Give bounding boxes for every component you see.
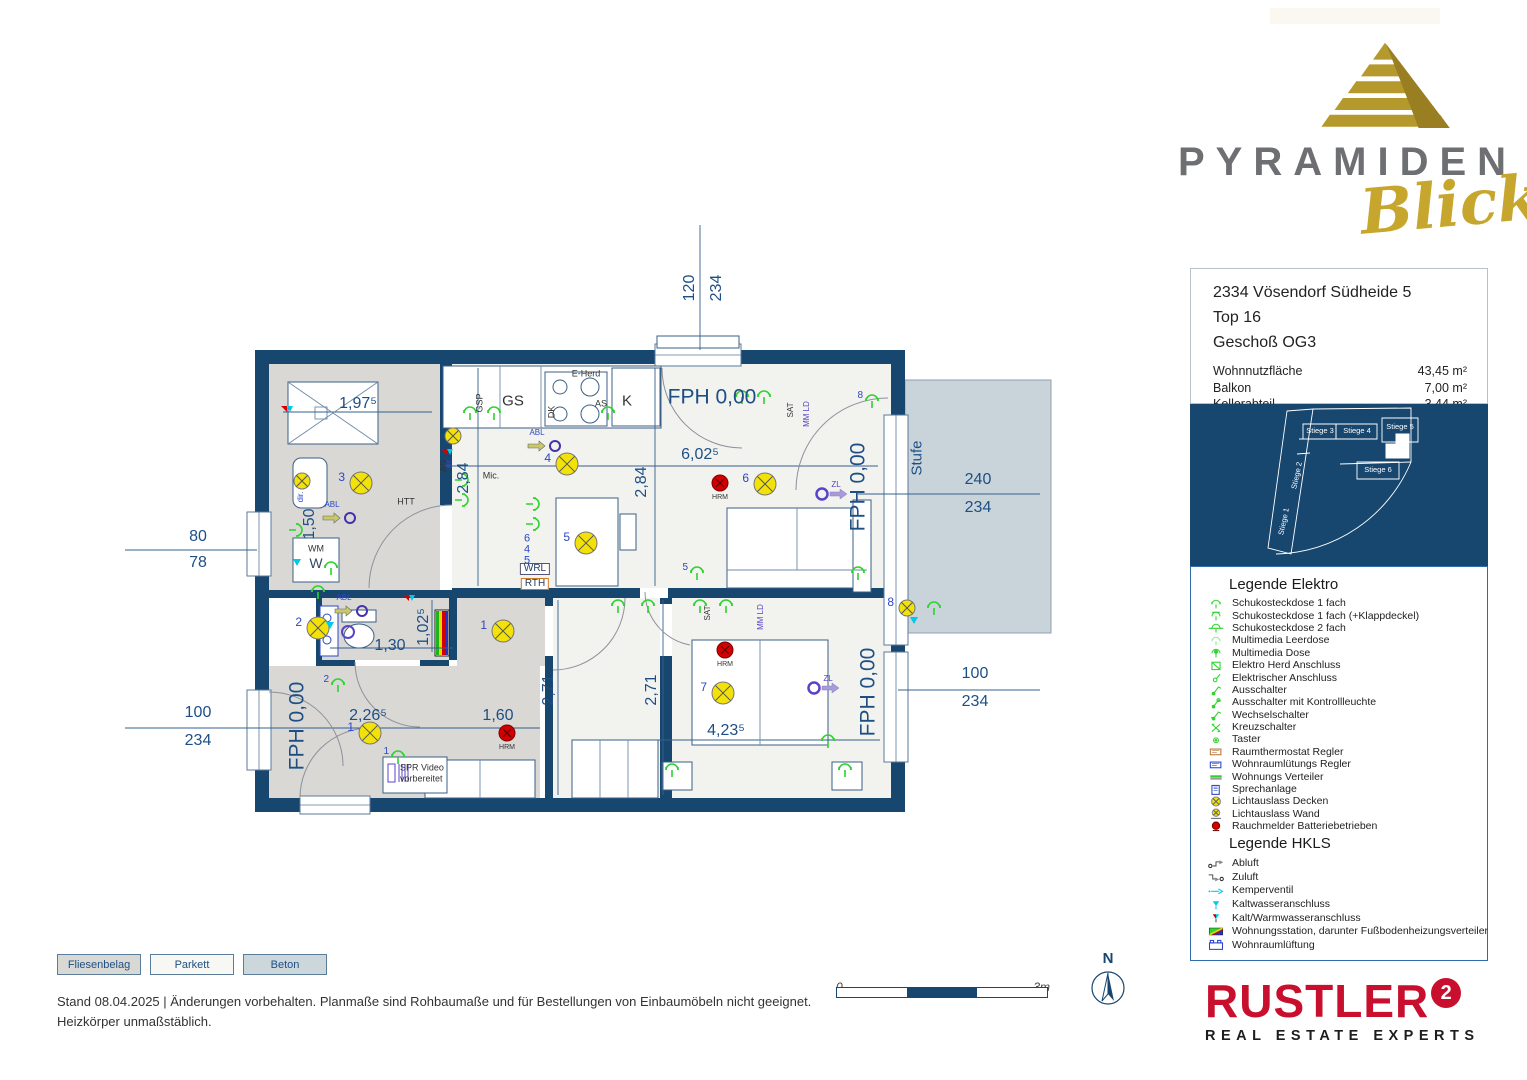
legend-item-label: Schukosteckdose 1 fach (+Klappdeckel) xyxy=(1232,610,1419,622)
wall xyxy=(545,598,553,606)
legend-item: Elektrischer Anschluss xyxy=(1203,671,1483,683)
footer-line-2: Heizkörper unmaßstäblich. xyxy=(57,1012,811,1032)
rustler-tagline: REAL ESTATE EXPERTS xyxy=(1205,1028,1480,1044)
svg-text:8: 8 xyxy=(857,390,863,401)
unit-location-marker xyxy=(1386,434,1409,458)
legend-hkls-list: AbluftZuluftKemperventilKaltwasseranschl… xyxy=(1203,856,1483,951)
legend-item-label: Kaltwasseranschluss xyxy=(1232,898,1330,910)
wstation-icon xyxy=(1203,925,1229,938)
legend-item: Zuluft xyxy=(1203,870,1483,884)
wall xyxy=(452,588,640,598)
legend-hkls-title: Legende HKLS xyxy=(1229,835,1483,852)
sitemap-stiege-label: Stiege 5 xyxy=(1386,422,1414,431)
svg-text:3: 3 xyxy=(338,470,345,484)
svg-text:ABL: ABL xyxy=(529,428,545,437)
material-swatch-beton[interactable]: Beton xyxy=(243,954,327,975)
taster-icon xyxy=(1203,733,1229,746)
legend-item: Ausschalter xyxy=(1203,684,1483,696)
svg-text:6: 6 xyxy=(742,471,749,485)
svg-text:5: 5 xyxy=(682,562,688,573)
room-fixture xyxy=(832,762,862,790)
wall-light-symbol xyxy=(445,428,461,444)
site-plan-svg: Stiege 1Stiege 2Stiege 3Stiege 4Stiege 5… xyxy=(1190,404,1488,566)
toilet xyxy=(344,624,374,648)
legend-item-label: Multimedia Leerdose xyxy=(1232,634,1329,646)
area-row: Balkon7,00 m² xyxy=(1213,380,1471,396)
north-arrow: N xyxy=(1086,950,1130,1013)
sitemap-stiege-label: Stiege 3 xyxy=(1306,426,1334,435)
floor-material-key: FliesenbelagParkettBeton xyxy=(57,954,327,975)
svg-text:ZL: ZL xyxy=(831,480,841,489)
legend-item: Ausschalter mit Kontrollleuchte xyxy=(1203,696,1483,708)
wall-light-symbol xyxy=(294,473,310,489)
legend-item-label: Wohnungs Verteiler xyxy=(1232,771,1323,783)
kemper-icon xyxy=(1203,884,1229,897)
legend-item: Wohnraumlüftung xyxy=(1203,938,1483,952)
sprech-icon xyxy=(1203,783,1229,796)
verteiler-icon xyxy=(1203,770,1229,783)
svg-text:1: 1 xyxy=(347,720,354,734)
wall xyxy=(370,798,905,812)
sitemap-stiege-label: Stiege 6 xyxy=(1364,465,1392,474)
brand-script-name: Blick xyxy=(1357,160,1527,248)
unit-number: Top 16 xyxy=(1213,306,1471,331)
room-floor xyxy=(322,598,449,660)
wall xyxy=(449,598,457,660)
wrr-icon xyxy=(1203,758,1229,771)
wall xyxy=(322,660,355,666)
rustler-logo-mark: 2 xyxy=(1431,978,1461,1008)
area-row: Wohnnutzfläche43,45 m² xyxy=(1213,363,1471,379)
legend-item-label: Kreuzschalter xyxy=(1232,721,1296,733)
legend-item: Multimedia Leerdose xyxy=(1203,634,1483,646)
legend-item: Lichtauslass Wand xyxy=(1203,808,1483,820)
zuluft-icon xyxy=(1203,870,1229,883)
legend-item: Wohnungsstation, darunter Fußbodenheizun… xyxy=(1203,924,1483,938)
compass-icon xyxy=(1088,968,1128,1008)
svg-text:ZL: ZL xyxy=(823,674,833,683)
legend-item-label: Taster xyxy=(1232,733,1261,745)
wall xyxy=(269,590,452,598)
rustler-name: RUSTLER xyxy=(1205,975,1429,1027)
area-label: Wohnnutzfläche xyxy=(1213,363,1302,379)
sitemap-stiege-label: Stiege 4 xyxy=(1343,426,1371,435)
legend-elektro-title: Legende Elektro xyxy=(1229,576,1483,593)
room-fixture xyxy=(853,500,871,592)
legend-item: Raumthermostat Regler xyxy=(1203,746,1483,758)
mm-leer-icon xyxy=(1203,634,1229,647)
legend-panel: Legende Elektro Schukosteckdose 1 fachSc… xyxy=(1190,566,1488,961)
balcony-slab xyxy=(905,380,1051,633)
licht-decke-icon xyxy=(1203,795,1229,808)
herd-icon xyxy=(1203,659,1229,672)
floor-plan-sheet: 112345678HRMHRMHRM2158ABLABLABLZLZL 1,97… xyxy=(0,0,1527,1080)
legend-item: Kaltwasseranschluss xyxy=(1203,897,1483,911)
mm-dose-icon xyxy=(1203,646,1229,659)
logo-top-strip xyxy=(1270,8,1440,24)
legend-item-label: Ausschalter xyxy=(1232,684,1287,696)
legend-item: Schukosteckdose 1 fach (+Klappdeckel) xyxy=(1203,609,1483,621)
room-fixture xyxy=(572,740,658,798)
sitemap-stiege-label: Stiege 1 xyxy=(1276,507,1291,536)
svg-text:ABL: ABL xyxy=(336,593,352,602)
legend-item-label: Kalt/Warmwasseranschluss xyxy=(1232,912,1361,924)
svg-text:HRM: HRM xyxy=(717,661,733,668)
right-info-panel: 2334 Vösendorf Südheide 5 Top 16 Geschoß… xyxy=(1190,268,1488,961)
rauchmelder-icon xyxy=(1203,820,1229,833)
legend-item-label: Raumthermostat Regler xyxy=(1232,746,1343,758)
wall xyxy=(740,350,891,364)
legend-item: Schukosteckdose 2 fach xyxy=(1203,622,1483,634)
kreuz-icon xyxy=(1203,721,1229,734)
pyramiden-blick-logo: PYRAMIDEN Blick xyxy=(1150,0,1527,260)
legend-item: Kreuzschalter xyxy=(1203,721,1483,733)
anschluss-icon xyxy=(1203,671,1229,684)
footer-line-1: Stand 08.04.2025 | Änderungen vorbehalte… xyxy=(57,992,811,1012)
legend-item-label: Schukosteckdose 1 fach xyxy=(1232,597,1346,609)
svg-text:5: 5 xyxy=(563,530,570,544)
room-fixture xyxy=(383,757,447,793)
wall xyxy=(891,350,905,415)
floor-label: Geschoß OG3 xyxy=(1213,331,1471,356)
room-fixture xyxy=(612,368,660,426)
legend-item: Lichtauslass Decken xyxy=(1203,795,1483,807)
abluft-icon xyxy=(1203,857,1229,870)
legend-item-label: Wohnungsstation, darunter Fußbodenheizun… xyxy=(1232,925,1488,937)
wall xyxy=(420,660,449,666)
svg-text:2: 2 xyxy=(323,674,329,685)
legend-item: Multimedia Dose xyxy=(1203,647,1483,659)
kaltwarm-icon xyxy=(1203,911,1229,924)
svg-text:7: 7 xyxy=(700,680,707,694)
rtr-icon xyxy=(1203,745,1229,758)
scale-bar: 0 3m xyxy=(836,984,1050,998)
legend-item: Wohnungs Verteiler xyxy=(1203,770,1483,782)
legend-item: Rauchmelder Batteriebetrieben xyxy=(1203,820,1483,832)
socket2-icon xyxy=(1203,621,1229,634)
room-fixture xyxy=(620,514,636,550)
legend-item-label: Wohnraumlütungs Regler xyxy=(1232,758,1351,770)
socket1-icon xyxy=(1203,597,1229,610)
legend-item-label: Wechselschalter xyxy=(1232,709,1309,721)
legend-item-label: Rauchmelder Batteriebetrieben xyxy=(1232,820,1377,832)
legend-item: Wohnraumlütungs Regler xyxy=(1203,758,1483,770)
svg-text:HRM: HRM xyxy=(499,744,515,751)
wall xyxy=(545,656,553,798)
rustler-logo: RUSTLER2 REAL ESTATE EXPERTS xyxy=(1205,978,1480,1044)
smoke-detector-symbol: HRM xyxy=(717,642,733,668)
legend-item: Kemperventil xyxy=(1203,884,1483,898)
wall xyxy=(255,350,269,515)
legend-item: Schukosteckdose 1 fach xyxy=(1203,597,1483,609)
svg-text:4: 4 xyxy=(544,451,551,465)
legend-item: Wechselschalter xyxy=(1203,709,1483,721)
scale-bar-track xyxy=(836,987,1048,998)
area-value: 43,45 m² xyxy=(1418,363,1467,379)
footer-disclaimer: Stand 08.04.2025 | Änderungen vorbehalte… xyxy=(57,992,811,1032)
legend-item-label: Zuluft xyxy=(1232,871,1258,883)
legend-item: Sprechanlage xyxy=(1203,783,1483,795)
svg-text:2: 2 xyxy=(295,615,302,629)
wechsel-icon xyxy=(1203,708,1229,721)
legend-item: Elektro Herd Anschluss xyxy=(1203,659,1483,671)
wall xyxy=(891,645,905,652)
ausschalter-icon xyxy=(1203,683,1229,696)
scale-bar-segment xyxy=(907,988,977,997)
svg-text:8: 8 xyxy=(887,595,894,609)
legend-item-label: Abluft xyxy=(1232,857,1259,869)
legend-item: Taster xyxy=(1203,733,1483,745)
legend-item-label: Elektro Herd Anschluss xyxy=(1232,659,1341,671)
wall xyxy=(255,768,269,812)
legend-item: Abluft xyxy=(1203,856,1483,870)
svg-text:HRM: HRM xyxy=(712,494,728,501)
material-swatch-parkett[interactable]: Parkett xyxy=(150,954,234,975)
area-value: 7,00 m² xyxy=(1425,380,1467,396)
socket1k-icon xyxy=(1203,609,1229,622)
legend-item-label: Lichtauslass Wand xyxy=(1232,808,1320,820)
ausschalter-k-icon xyxy=(1203,696,1229,709)
room-fixture xyxy=(657,336,739,348)
pyramid-icon xyxy=(1310,38,1460,134)
svg-text:1: 1 xyxy=(480,618,487,632)
wall xyxy=(660,598,672,604)
smoke-detector-symbol: HRM xyxy=(712,475,728,501)
wrl-icon xyxy=(1203,938,1229,951)
area-label: Balkon xyxy=(1213,380,1251,396)
unit-info-card: 2334 Vösendorf Südheide 5 Top 16 Geschoß… xyxy=(1190,268,1488,404)
kalt-icon xyxy=(1203,898,1229,911)
wall xyxy=(255,575,269,692)
legend-item-label: Lichtauslass Decken xyxy=(1232,795,1328,807)
legend-item: Kalt/Warmwasseranschluss xyxy=(1203,911,1483,925)
wall xyxy=(891,762,905,812)
legend-item-label: Sprechanlage xyxy=(1232,783,1297,795)
svg-text:1: 1 xyxy=(383,746,389,757)
smoke-detector-symbol: HRM xyxy=(499,725,515,751)
wall xyxy=(255,350,655,364)
legend-item-label: Wohnraumlüftung xyxy=(1232,939,1315,951)
north-label: N xyxy=(1086,950,1130,967)
legend-item-label: Kemperventil xyxy=(1232,884,1293,896)
material-swatch-fliesenbelag[interactable]: Fliesenbelag xyxy=(57,954,141,975)
legend-elektro-list: Schukosteckdose 1 fachSchukosteckdose 1 … xyxy=(1203,597,1483,832)
site-plan-minimap: Stiege 1Stiege 2Stiege 3Stiege 4Stiege 5… xyxy=(1190,404,1488,566)
legend-item-label: Multimedia Dose xyxy=(1232,647,1310,659)
project-address: 2334 Vösendorf Südheide 5 xyxy=(1213,281,1471,306)
licht-wand-icon xyxy=(1203,807,1229,820)
legend-item-label: Elektrischer Anschluss xyxy=(1232,672,1337,684)
legend-item-label: Schukosteckdose 2 fach xyxy=(1232,622,1346,634)
legend-item-label: Ausschalter mit Kontrollleuchte xyxy=(1232,696,1376,708)
svg-text:ABL: ABL xyxy=(324,500,340,509)
